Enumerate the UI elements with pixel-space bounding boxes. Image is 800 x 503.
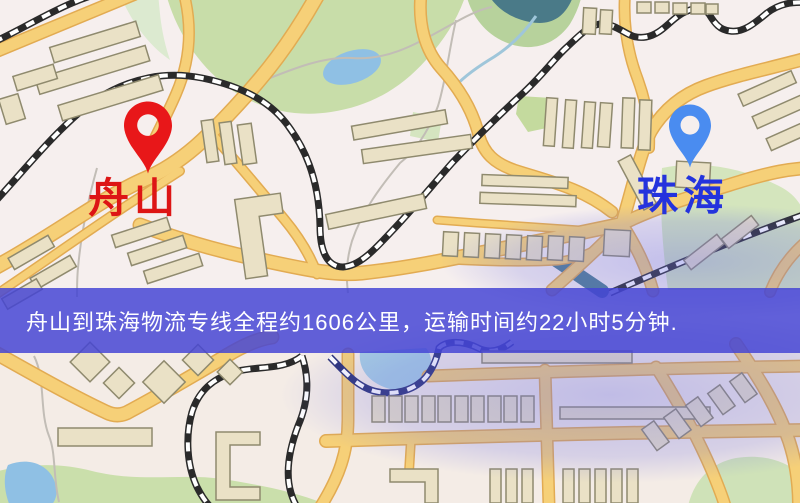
route-info-text: 舟山到珠海物流专线全程约1606公里，运输时间约22小时5分钟. [26,305,678,337]
origin-pin[interactable] [124,101,172,174]
destination-pin-icon [669,103,711,169]
destination-pin[interactable] [669,103,711,169]
destination-city-label: 珠海 [637,176,729,217]
origin-city-label: 舟山 [88,178,180,219]
origin-pin-icon [124,101,172,174]
route-info-banner: 舟山到珠海物流专线全程约1606公里，运输时间约22小时5分钟. [0,288,800,353]
map-screenshot: 舟山 珠海 舟山到珠海物流专线全程约1606公里，运输时间约22小时5分钟. [0,0,800,503]
map-background[interactable] [0,0,800,503]
